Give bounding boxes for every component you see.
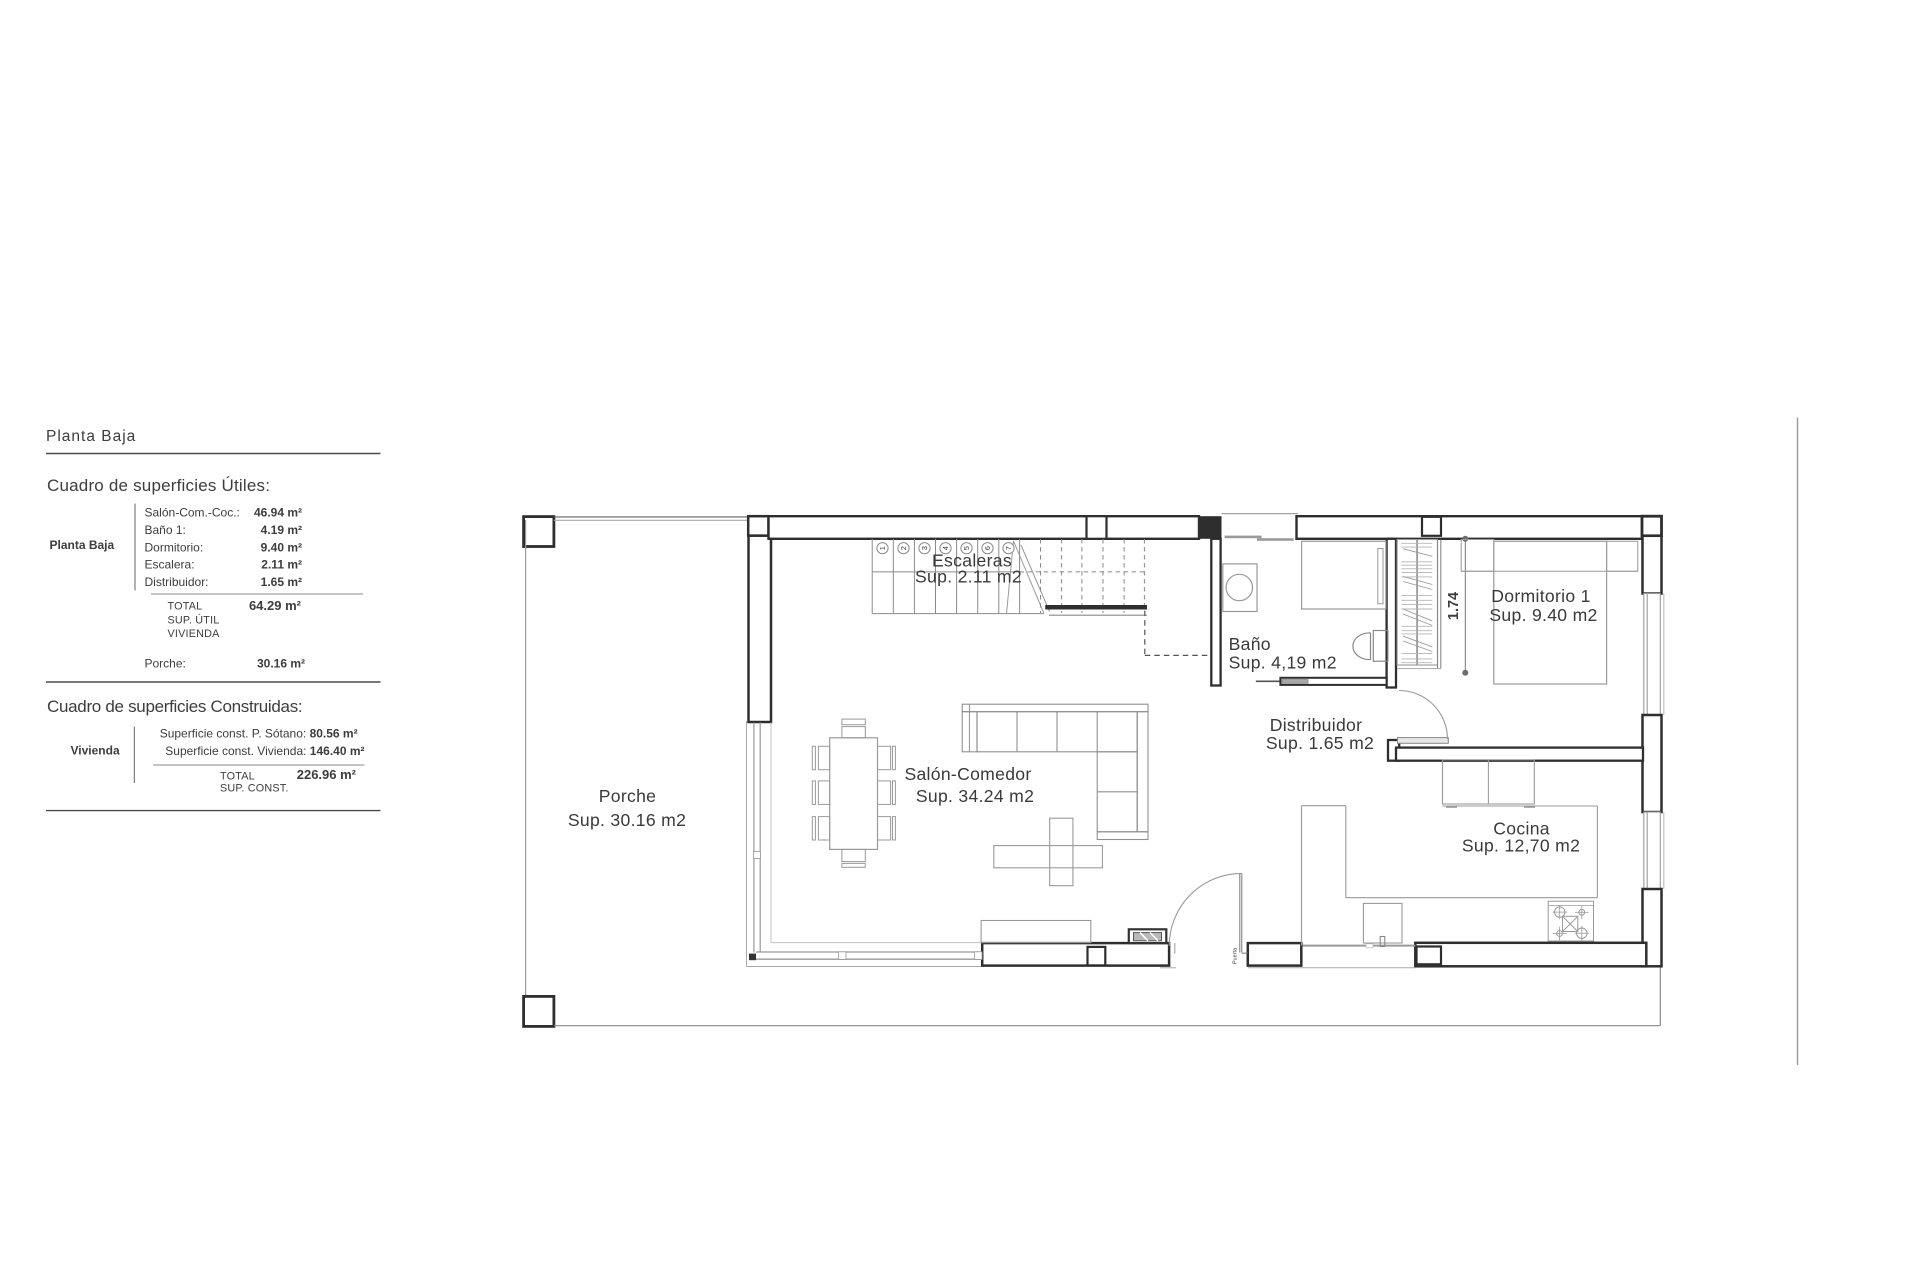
svg-text:Superficie const. Vivienda: 14: Superficie const. Vivienda: 146.40 m² [165, 744, 364, 758]
svg-text:2: 2 [899, 546, 908, 550]
svg-text:Porche:: Porche: [145, 657, 186, 671]
svg-text:Cuadro de superficies Construi: Cuadro de superficies Construidas: [47, 697, 302, 716]
svg-text:Dormitorio:: Dormitorio: [145, 540, 204, 554]
svg-text:1.74: 1.74 [1446, 592, 1462, 620]
svg-text:Sup. 2.11 m2: Sup. 2.11 m2 [915, 567, 1022, 587]
svg-text:SUP. ÚTIL: SUP. ÚTIL [168, 613, 220, 626]
svg-text:TOTAL: TOTAL [168, 601, 203, 613]
svg-text:Distribuidor: Distribuidor [1270, 715, 1363, 735]
svg-text:1.65 m²: 1.65 m² [261, 575, 302, 589]
svg-text:Sup. 1.65 m2: Sup. 1.65 m2 [1266, 733, 1374, 753]
svg-text:Vivienda: Vivienda [71, 744, 120, 758]
svg-text:Salón-Comedor: Salón-Comedor [904, 764, 1031, 784]
svg-text:Escalera:: Escalera: [145, 558, 195, 572]
svg-text:Porche: Porche [599, 786, 657, 806]
svg-text:30.16 m²: 30.16 m² [257, 657, 305, 671]
svg-text:Baño 1:: Baño 1: [145, 523, 186, 537]
svg-text:64.29 m²: 64.29 m² [249, 598, 302, 613]
svg-text:Sup. 9.40 m2: Sup. 9.40 m2 [1489, 605, 1597, 625]
svg-text:Sup. 12,70 m2: Sup. 12,70 m2 [1462, 836, 1580, 856]
svg-text:Planta Baja: Planta Baja [46, 428, 136, 445]
svg-text:226.96 m²: 226.96 m² [297, 767, 357, 782]
svg-text:Superficie const. P. Sótano: 8: Superficie const. P. Sótano: 80.56 m² [160, 727, 358, 741]
svg-text:Dormitorio 1: Dormitorio 1 [1491, 586, 1590, 606]
svg-text:TOTAL: TOTAL [220, 771, 255, 783]
svg-text:Salón-Com.-Coc.:: Salón-Com.-Coc.: [145, 506, 240, 520]
svg-text:Cuadro de superficies Útiles:: Cuadro de superficies Útiles: [47, 476, 270, 495]
svg-text:9.40 m²: 9.40 m² [261, 540, 302, 554]
svg-text:3: 3 [920, 546, 929, 550]
svg-text:SUP. CONST.: SUP. CONST. [220, 782, 289, 794]
svg-text:Puerta: Puerta [1233, 947, 1239, 964]
svg-text:4.19 m²: 4.19 m² [261, 523, 302, 537]
svg-text:Sup. 34.24 m2: Sup. 34.24 m2 [916, 786, 1034, 806]
svg-text:Planta Baja: Planta Baja [50, 538, 115, 552]
svg-text:2.11 m²: 2.11 m² [261, 558, 302, 572]
svg-text:Distribuidor:: Distribuidor: [145, 575, 209, 589]
svg-text:Sup. 30.16 m2: Sup. 30.16 m2 [568, 810, 686, 830]
svg-text:1: 1 [878, 546, 887, 550]
svg-text:Baño: Baño [1229, 634, 1271, 654]
svg-text:Sup. 4,19 m2: Sup. 4,19 m2 [1229, 653, 1337, 673]
svg-text:VIVIENDA: VIVIENDA [168, 628, 221, 640]
svg-text:46.94 m²: 46.94 m² [254, 506, 302, 520]
